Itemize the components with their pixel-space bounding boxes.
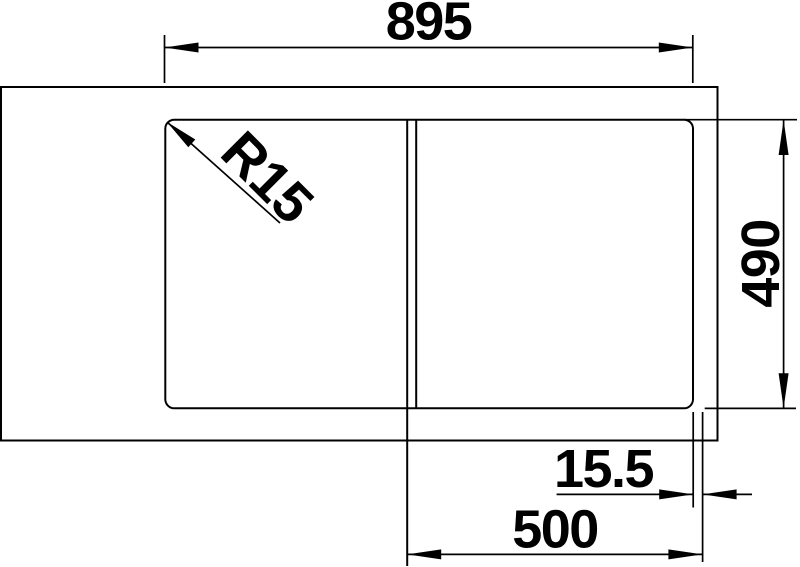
svg-text:500: 500 <box>512 500 598 560</box>
svg-text:490: 490 <box>731 219 791 308</box>
svg-text:895: 895 <box>386 0 472 52</box>
svg-text:15.5: 15.5 <box>554 439 654 499</box>
